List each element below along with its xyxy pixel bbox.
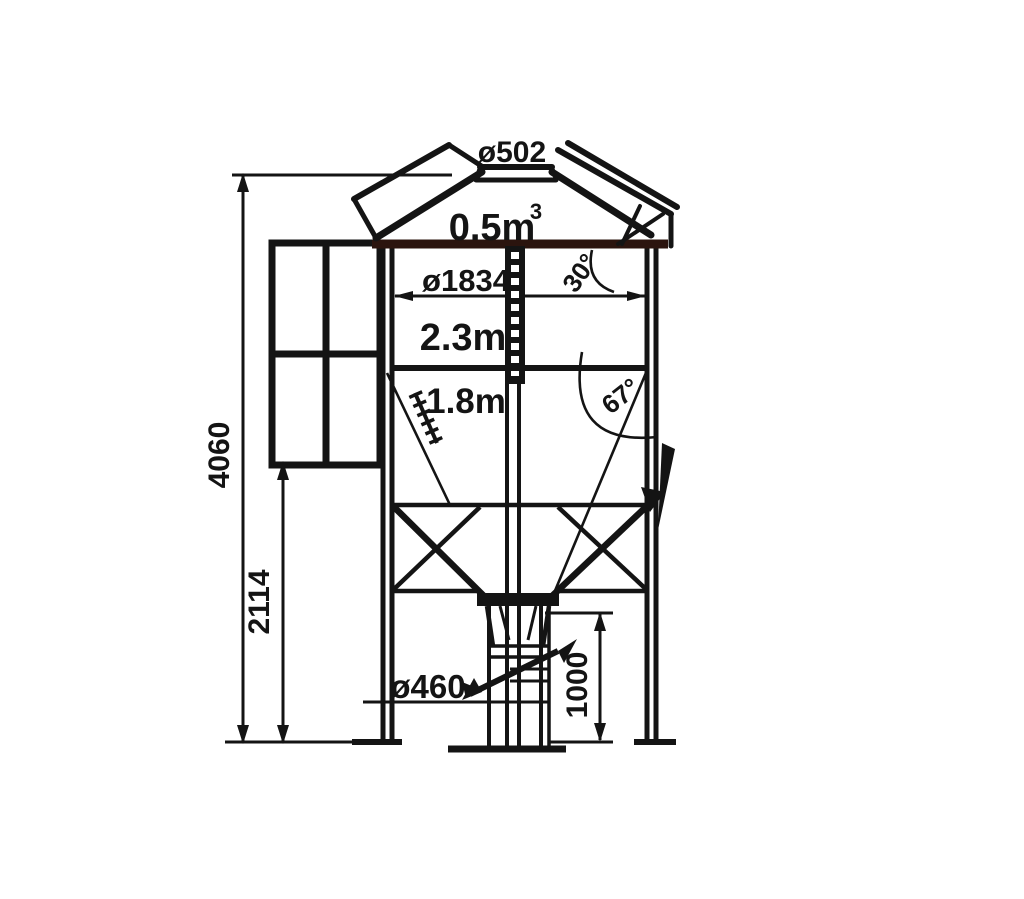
arrow-outlet-bottom <box>594 723 606 742</box>
label-cap-volume: 0.5m <box>449 207 536 249</box>
label-outlet-diameter: ø460 <box>390 668 465 705</box>
fill-pipe-upper <box>568 143 677 207</box>
label-body-height: 2.3m <box>420 317 507 359</box>
ladder-cage <box>272 243 380 465</box>
label-total-height: 4060 <box>203 422 236 489</box>
label-body-lower: 1.8m <box>426 382 506 421</box>
label-cap-volume-exponent: 3 <box>530 199 542 224</box>
roof-left-edge <box>354 199 376 238</box>
label-outlet-height: 1000 <box>561 652 594 719</box>
arrow-outlet-top <box>594 612 606 631</box>
outlet-collar <box>477 593 559 606</box>
label-hopper-angle: 67° <box>596 372 645 420</box>
fill-pipe-lower <box>558 150 671 214</box>
arrow-diameter-right <box>627 291 646 301</box>
hopper-cone-right <box>550 505 648 598</box>
label-leg-clearance: 2114 <box>243 569 276 634</box>
hopper-cone-left <box>392 505 486 598</box>
label-body-diameter: ø1834 <box>422 263 511 298</box>
drawing-canvas: ø502 0.5m 3 ø1834 30° 2.3m 1.8m 67° 4060… <box>0 0 1024 899</box>
outlet-funnel-inner-right <box>528 606 536 640</box>
label-roof-angle: 30° <box>556 248 603 297</box>
flow-arrow-shaft <box>658 443 675 530</box>
roof-slope-left-outer <box>354 145 449 199</box>
label-top-opening-diameter: ø502 <box>478 136 546 169</box>
arrow-diameter-left <box>394 291 413 301</box>
silo-technical-drawing: ø502 0.5m 3 ø1834 30° 2.3m 1.8m 67° 4060… <box>0 0 1024 899</box>
